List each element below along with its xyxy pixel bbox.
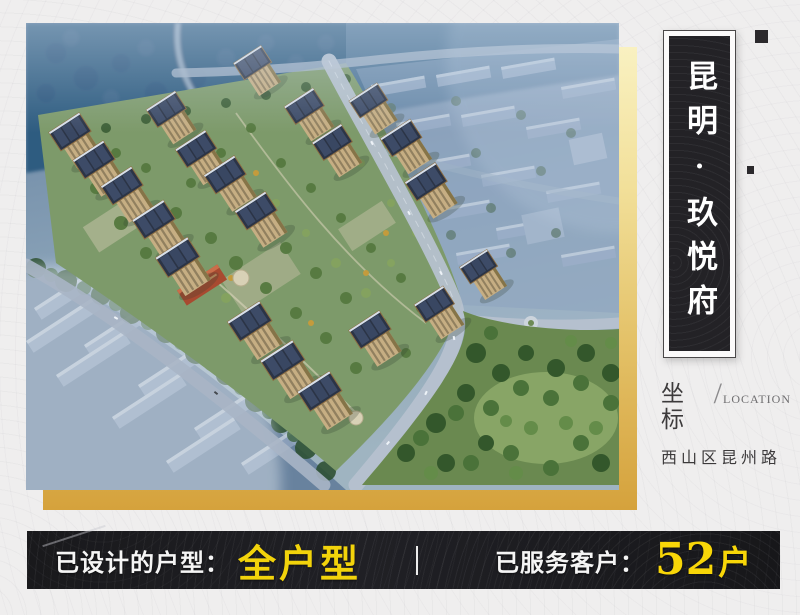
designed-stat: 已设计的户型： 全户型 xyxy=(55,531,361,589)
project-name-banner-inner: 昆明·玖悦府 xyxy=(669,36,730,351)
served-stat-label: 已服务客户： xyxy=(495,543,645,578)
location-block: 坐标 / Location 西山区昆州路 xyxy=(661,381,791,468)
location-label-en: Location xyxy=(723,383,791,413)
designed-stat-value: 全户型 xyxy=(238,533,361,588)
served-stat-unit: 户 xyxy=(718,536,751,584)
location-heading: 坐标 / Location xyxy=(661,381,791,433)
decor-square-small xyxy=(747,166,754,174)
location-label-zh: 坐标 xyxy=(661,381,713,433)
decor-square-large xyxy=(755,30,768,43)
poster-canvas: 昆明·玖悦府 坐标 / Location 西山区昆州路 已设计的户型： 全户型 … xyxy=(0,0,800,615)
location-separator: / xyxy=(714,381,722,407)
served-stat: 已服务客户： 52 户 xyxy=(495,531,751,589)
aerial-rendering-svg xyxy=(26,23,619,490)
stats-bar: 已设计的户型： 全户型 已服务客户： 52 户 xyxy=(27,531,780,589)
designed-stat-label: 已设计的户型： xyxy=(55,543,230,578)
location-address: 西山区昆州路 xyxy=(661,444,791,468)
served-stat-number: 52 xyxy=(655,538,716,582)
project-name-banner: 昆明·玖悦府 xyxy=(663,30,736,358)
aerial-rendering xyxy=(26,23,619,490)
project-title: 昆明·玖悦府 xyxy=(684,60,715,328)
stats-divider xyxy=(416,546,418,575)
